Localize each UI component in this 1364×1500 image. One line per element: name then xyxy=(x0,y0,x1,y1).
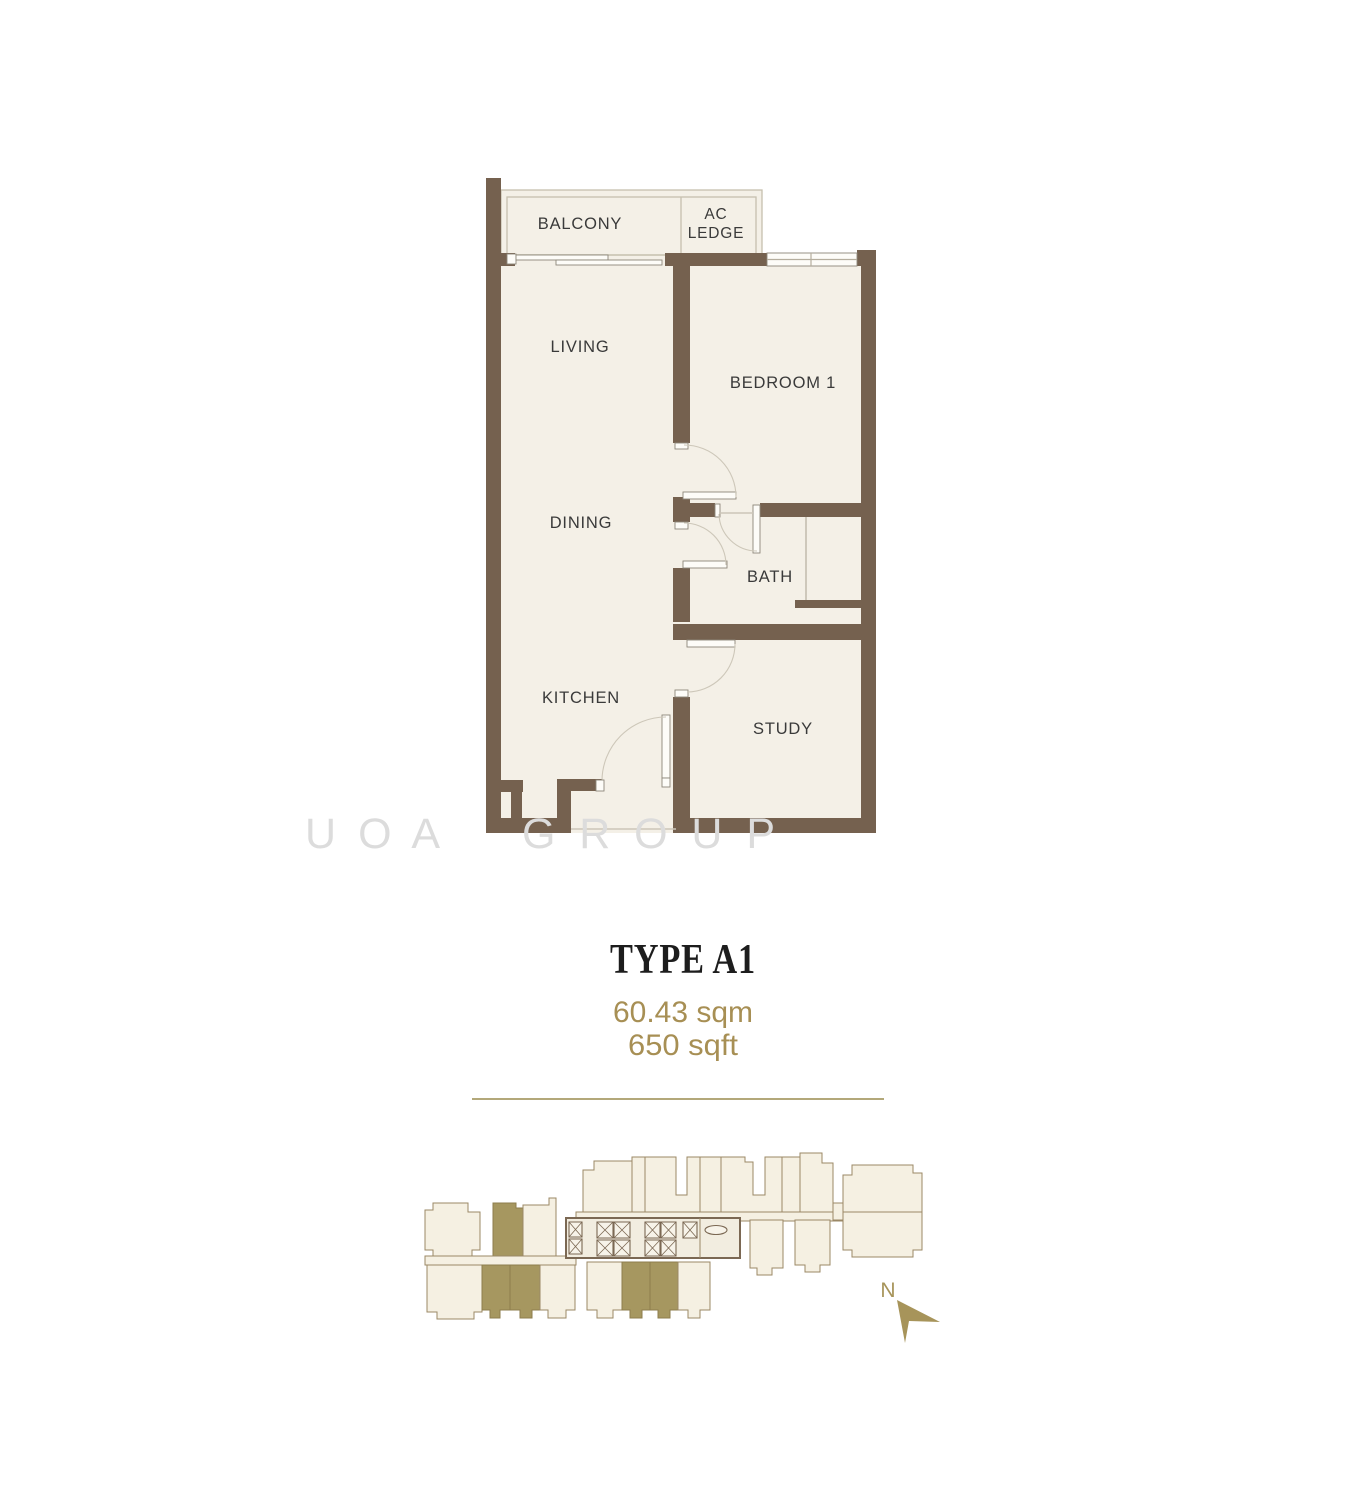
key-plan-highlight-unit xyxy=(622,1262,650,1318)
key-plan-highlight-unit xyxy=(510,1265,540,1318)
key-plan-unit xyxy=(750,1220,783,1275)
key-plan-top-row xyxy=(583,1153,833,1212)
room-label-bedroom1: BEDROOM 1 xyxy=(730,374,836,392)
key-plan: N xyxy=(425,1153,940,1343)
key-plan-corridor-left xyxy=(425,1256,576,1265)
key-plan-unit xyxy=(540,1265,575,1318)
watermark-left: U O A xyxy=(305,810,440,858)
key-plan-connector xyxy=(833,1203,843,1220)
key-plan-unit xyxy=(795,1220,830,1272)
key-plan-unit xyxy=(678,1262,710,1318)
room-label-ac-ledge-line2: LEDGE xyxy=(688,225,745,242)
key-plan-unit xyxy=(427,1265,482,1319)
north-indicator: N xyxy=(880,1279,940,1343)
key-plan-right-block xyxy=(843,1165,922,1257)
key-plan-unit xyxy=(425,1203,480,1257)
room-label-kitchen: KITCHEN xyxy=(542,689,620,707)
north-arrow-icon xyxy=(897,1300,940,1343)
room-label-balcony: BALCONY xyxy=(538,215,622,233)
key-plan-unit xyxy=(523,1198,556,1256)
key-plan-highlight-unit xyxy=(493,1203,523,1256)
room-label-dining: DINING xyxy=(550,514,613,532)
key-plan-unit xyxy=(587,1262,622,1318)
unit-area-sqft: 650 sqft xyxy=(628,1029,739,1062)
room-label-study: STUDY xyxy=(753,720,813,738)
floor-plan: BALCONY AC LEDGE LIVING BEDROOM 1 DINING… xyxy=(486,178,876,833)
key-plan-core xyxy=(566,1218,740,1258)
north-label: N xyxy=(880,1279,895,1302)
unit-type-title: TYPE A1 xyxy=(610,937,756,983)
floor-plan-page: BALCONY AC LEDGE LIVING BEDROOM 1 DINING… xyxy=(0,0,1364,1500)
room-label-ac-ledge-line1: AC xyxy=(704,206,727,223)
unit-area-sqm: 60.43 sqm xyxy=(613,996,753,1029)
key-plan-highlight-unit xyxy=(650,1262,678,1318)
watermark: U O A G R O U P xyxy=(305,810,775,858)
room-label-living: LIVING xyxy=(551,338,610,356)
unit-info: TYPE A1 60.43 sqm 650 sqft xyxy=(610,937,756,1062)
room-label-bath: BATH xyxy=(747,568,793,586)
divider-line xyxy=(472,1098,884,1100)
key-plan-highlight-unit xyxy=(482,1265,510,1318)
